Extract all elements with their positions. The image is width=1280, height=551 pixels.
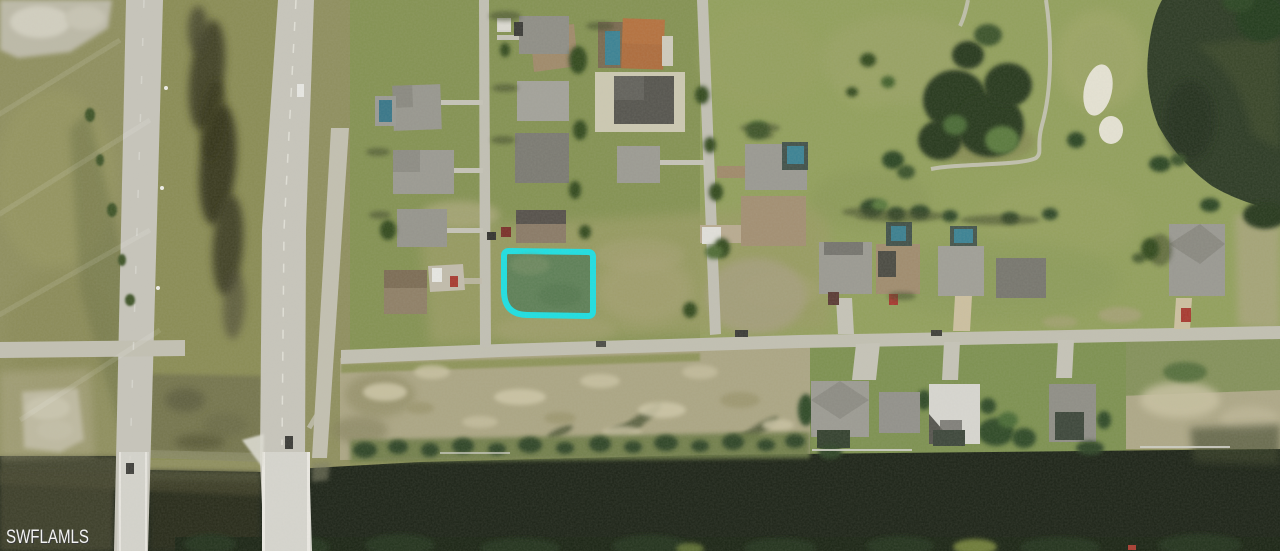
svg-text:SWFLAMLS: SWFLAMLS bbox=[6, 526, 89, 548]
